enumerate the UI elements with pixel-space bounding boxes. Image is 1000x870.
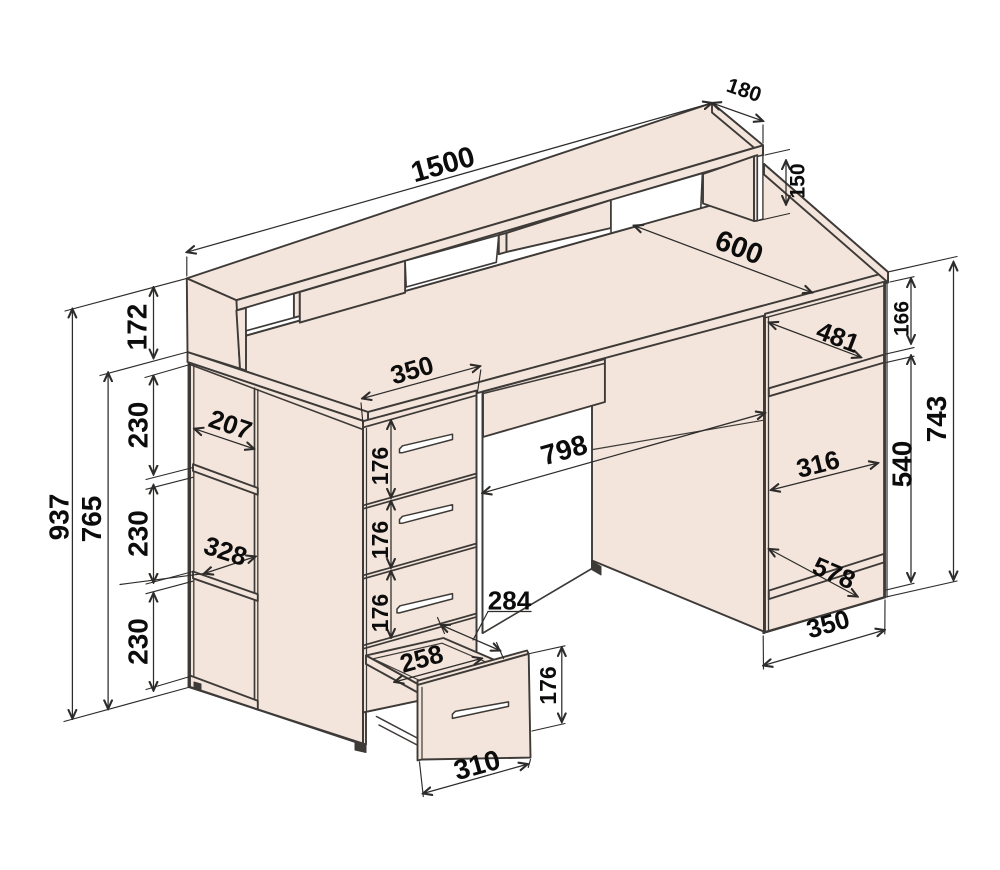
svg-text:765: 765	[76, 496, 107, 543]
svg-text:230: 230	[123, 618, 154, 665]
svg-text:230: 230	[123, 510, 154, 557]
svg-text:176: 176	[535, 666, 561, 704]
svg-text:230: 230	[123, 402, 154, 449]
svg-text:540: 540	[887, 441, 918, 488]
svg-text:176: 176	[367, 447, 393, 485]
svg-text:150: 150	[787, 163, 810, 198]
svg-text:166: 166	[891, 301, 914, 336]
svg-text:743: 743	[921, 396, 952, 443]
svg-text:176: 176	[367, 594, 393, 632]
svg-text:937: 937	[44, 494, 75, 541]
svg-text:176: 176	[367, 521, 393, 559]
svg-text:172: 172	[122, 304, 153, 351]
